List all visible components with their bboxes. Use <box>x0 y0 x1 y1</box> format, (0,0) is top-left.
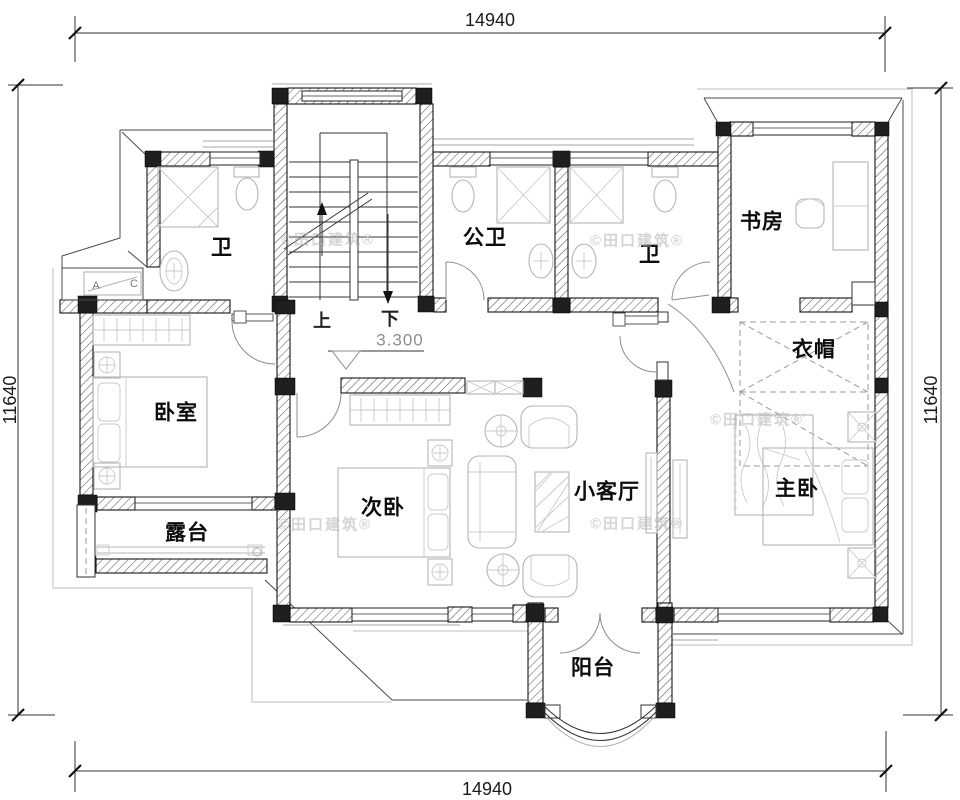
wall-niche <box>852 282 875 305</box>
label-public-bath: 公卫 <box>463 227 507 250</box>
label-stair-up: 上 <box>313 311 331 331</box>
master-nightstand-1 <box>848 412 876 442</box>
balcony-french-doors <box>560 613 640 653</box>
label-bedroom: 卧室 <box>154 401 198 425</box>
toilet-3 <box>652 167 678 212</box>
study-chair <box>796 199 824 228</box>
watermark-3: ©田口建筑® <box>278 516 372 534</box>
floor-plan-page: 14940 14940 11640 11640 卫 <box>0 0 960 800</box>
watermark-4: ©田口建筑® <box>590 515 684 533</box>
dimension-bottom: 14940 <box>69 731 892 799</box>
master-nightstand-2 <box>848 548 876 578</box>
label-cloakroom: 衣帽 <box>792 338 836 362</box>
dim-top-value: 14940 <box>465 10 515 30</box>
dimension-right: 11640 <box>903 82 953 721</box>
label-study: 书房 <box>740 210 784 234</box>
label-balcony: 阳台 <box>571 656 615 680</box>
elevation-marker <box>328 351 424 369</box>
coffee-table <box>535 472 569 532</box>
dim-left-value: 11640 <box>0 376 20 425</box>
second-bedroom-door <box>297 393 341 437</box>
watermark-5: ©田口建筑® <box>710 411 804 429</box>
study-desk <box>833 162 868 250</box>
hall-door <box>613 313 658 372</box>
transom-boxes <box>467 381 523 394</box>
label-small-living-room: 小客厅 <box>574 480 640 504</box>
bedroom-door <box>232 311 275 364</box>
dim-bottom-value: 14940 <box>462 779 512 799</box>
dimension-top: 14940 <box>69 10 891 72</box>
label-terrace: 露台 <box>165 521 209 545</box>
bedroom-wardrobe <box>93 315 190 345</box>
label-master-bedroom: 主卧 <box>775 478 819 501</box>
sink-1 <box>160 251 188 291</box>
bath2-door <box>672 262 710 300</box>
side-table-2 <box>486 553 520 587</box>
public-bath-door <box>446 262 484 300</box>
windows <box>135 91 852 621</box>
label-bath1: 卫 <box>211 237 233 260</box>
staircase <box>284 133 418 304</box>
watermark-2: ©田口建筑® <box>590 232 684 250</box>
sink-2 <box>529 244 553 278</box>
watermark-1: ©田口建筑® <box>281 231 375 249</box>
armchair-1 <box>521 406 577 448</box>
second-bedroom-wardrobe <box>350 395 450 425</box>
label-ac-c: C <box>130 278 138 290</box>
sofa <box>468 456 516 548</box>
label-ac-a: A <box>92 280 100 292</box>
structural-columns <box>78 88 889 718</box>
bedroom-nightstand-1 <box>94 352 120 378</box>
terrace-railing <box>97 545 265 556</box>
stair-up-arrow <box>317 202 327 215</box>
side-table-1 <box>484 414 518 448</box>
label-stair-down: 下 <box>381 309 399 329</box>
dim-right-value: 11640 <box>921 376 941 425</box>
bathroom-fixtures <box>158 167 678 291</box>
floor-plan-svg: 14940 14940 11640 11640 卫 <box>0 0 960 800</box>
second-bedroom-nightstand-1 <box>428 440 452 466</box>
toilet-1 <box>234 167 259 210</box>
shower-1 <box>158 167 218 227</box>
suite-door <box>668 304 734 392</box>
armchair-2 <box>523 555 577 597</box>
shower-3 <box>570 167 623 223</box>
label-elevation: 3.300 <box>376 331 424 350</box>
shower-2 <box>497 167 550 223</box>
second-bedroom-nightstand-2 <box>428 559 452 585</box>
toilet-2 <box>450 167 476 212</box>
